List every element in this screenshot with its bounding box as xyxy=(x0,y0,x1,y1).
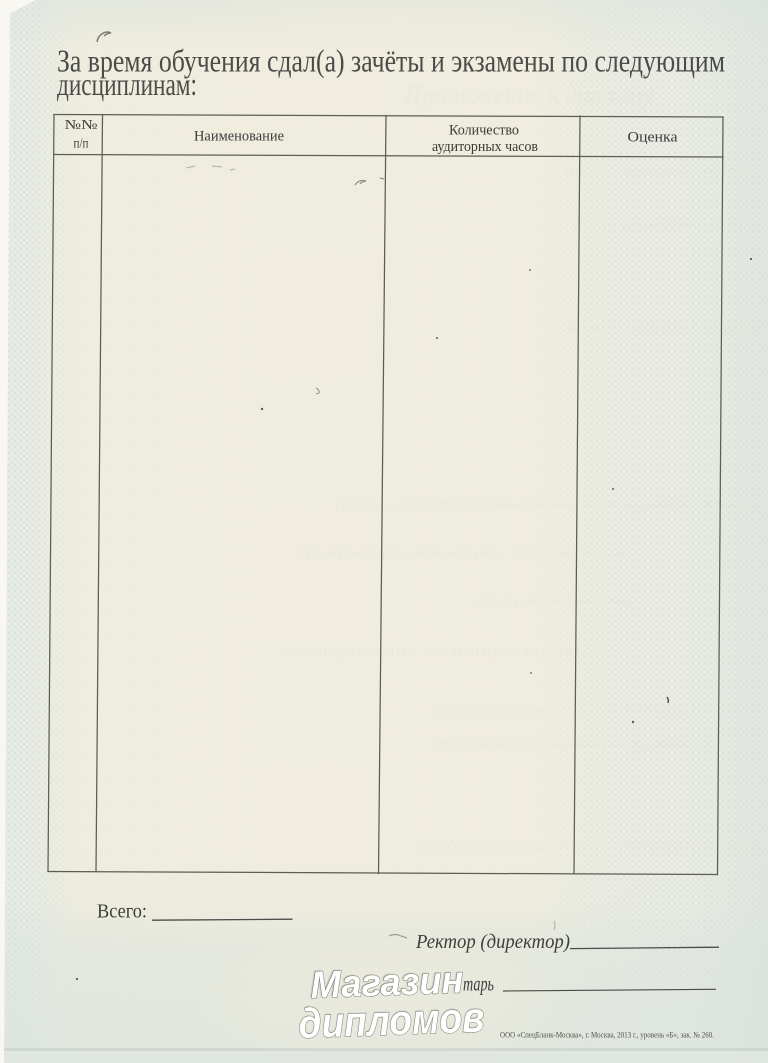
svg-text:полное наименование учреждения: полное наименование учреждения xyxy=(300,546,630,561)
svg-text:Количество: Количество xyxy=(449,123,519,139)
svg-text:п/п: п/п xyxy=(74,136,89,151)
svg-text:решением аттестационной комисс: решением аттестационной комиссии xyxy=(431,704,702,719)
svg-text:присвоена квалификация специал: присвоена квалификация специалиста xyxy=(430,737,730,752)
svg-text:дипломов: дипломов xyxy=(298,993,486,1047)
svg-text:(СПО) и регистрационный номер: (СПО) и регистрационный номер и дата выд… xyxy=(335,497,760,512)
svg-text:аудиторных часов: аудиторных часов xyxy=(432,139,538,155)
svg-text:Наименование: Наименование xyxy=(194,129,284,145)
svg-text:Приложение к диплому: Приложение к диплому xyxy=(403,80,654,109)
svg-text:Всего:: Всего: xyxy=(97,901,147,923)
svg-text:№№: №№ xyxy=(65,117,98,132)
svg-text:ООО «СпецБланк-Москва», г. Мос: ООО «СпецБланк-Москва», г. Москва, 2013 … xyxy=(500,1031,714,1040)
svg-text:председатель аттестационной ко: председатель аттестационной комиссии xyxy=(420,839,760,854)
svg-text:Оценка: Оценка xyxy=(628,130,678,146)
svg-text:специальность: специальность xyxy=(472,594,632,609)
svg-text:квалификация по направлению: квалификация по направлению xyxy=(280,644,580,659)
svg-text:дисциплинам:: дисциплинам: xyxy=(57,66,197,102)
svg-text:наименование учебного: наименование учебного xyxy=(557,321,762,336)
svg-text:Ректор (директор): Ректор (директор) xyxy=(415,931,570,953)
svg-text:фамилия имя отчество: фамилия имя отчество xyxy=(565,163,755,178)
svg-text:дата рождения число: дата рождения число xyxy=(573,217,758,232)
